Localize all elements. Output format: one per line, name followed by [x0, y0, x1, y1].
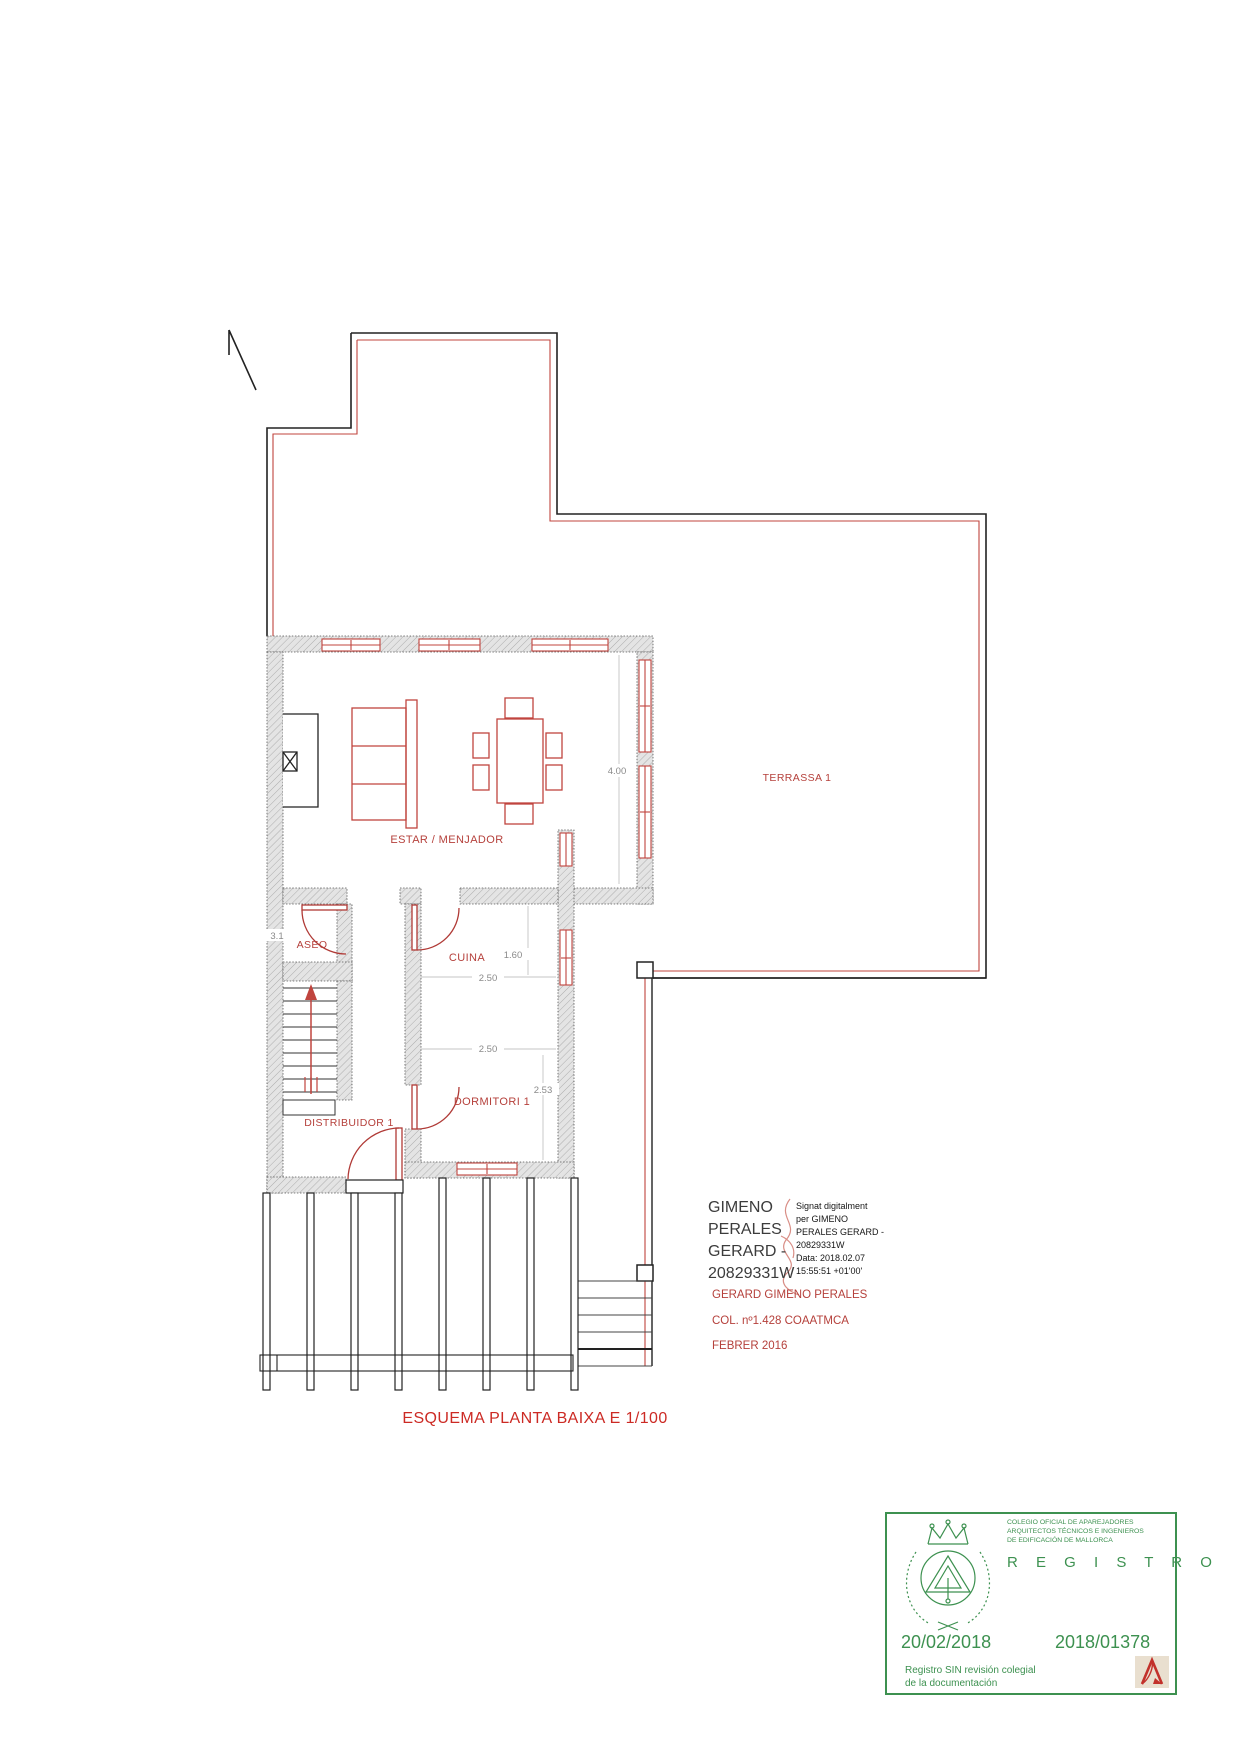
signature-detail-block: Signat digitalment per GIMENO PERALES GE…	[796, 1200, 884, 1278]
label-terrassa: TERRASSA 1	[763, 772, 832, 784]
label-cuina: CUINA	[449, 952, 485, 964]
arrow-head	[305, 984, 317, 1000]
door-dormitori	[412, 1085, 459, 1129]
plot-boundary	[267, 333, 986, 978]
signature-name-line: PERALES	[708, 1219, 794, 1241]
dining-table	[473, 698, 562, 824]
signature-name-block: GIMENO PERALES GERARD - 20829331W	[708, 1197, 794, 1285]
signature-detail-line: 15:55:51 +01'00'	[796, 1265, 884, 1278]
stamp-note-line: de la documentación	[905, 1677, 1036, 1690]
signature-detail-line: 20829331W	[796, 1239, 884, 1252]
label-aseo: ASEO	[297, 939, 328, 951]
stamp-org-line: DE EDIFICACIÓN DE MALLORCA	[1007, 1537, 1144, 1546]
coaat-red-logo-icon	[1135, 1656, 1169, 1688]
signature-name-line: 20829331W	[708, 1263, 794, 1285]
registro-stamp: COLEGIO OFICIAL DE APAREJADORES ARQUITEC…	[885, 1512, 1177, 1695]
floor-plan-drawing: 4.00 1.60 2.50 2.50 2.53 3.1 TERRASSA 1 …	[0, 0, 1241, 1755]
stamp-registro-label: R E G I S T R O	[1007, 1554, 1219, 1571]
cert-line-college: COL. nº1.428 COAATMCA	[712, 1309, 867, 1335]
stamp-org-block: COLEGIO OFICIAL DE APAREJADORES ARQUITEC…	[1007, 1519, 1144, 1545]
stamp-note-line: Registro SIN revisión colegial	[905, 1664, 1036, 1677]
signature-name-line: GIMENO	[708, 1197, 794, 1219]
stamp-note-block: Registro SIN revisión colegial de la doc…	[905, 1664, 1036, 1690]
stamp-number: 2018/01378	[1055, 1632, 1150, 1653]
drawing-title: ESQUEMA PLANTA BAIXA E 1/100	[380, 1410, 690, 1428]
stairs-exterior	[577, 1281, 652, 1370]
college-emblem-icon	[893, 1518, 1003, 1632]
dim-dorm-d: 2.53	[534, 1085, 553, 1096]
label-dormitori: DORMITORI 1	[454, 1096, 530, 1108]
dim-living: 4.00	[608, 766, 627, 777]
label-estar-menjador: ESTAR / MENJADOR	[390, 834, 503, 846]
signature-detail-line: Data: 2018.02.07	[796, 1252, 884, 1265]
north-arrow-icon	[229, 330, 256, 390]
signature-name-line: GERARD -	[708, 1241, 794, 1263]
label-distribuidor: DISTRIBUIDOR 1	[304, 1117, 394, 1129]
stamp-date: 20/02/2018	[901, 1632, 991, 1653]
signature-detail-line: Signat digitalment	[796, 1200, 884, 1213]
signature-detail-line: PERALES GERARD -	[796, 1226, 884, 1239]
signature-detail-line: per GIMENO	[796, 1213, 884, 1226]
document-page: 4.00 1.60 2.50 2.50 2.53 3.1 TERRASSA 1 …	[0, 0, 1241, 1755]
dim-cuina-d: 2.50	[479, 973, 498, 984]
counter	[283, 714, 318, 807]
cert-line-name: GERARD GIMENO PERALES	[712, 1283, 867, 1309]
dim-cuina-w: 1.60	[504, 950, 523, 961]
entrance-threshold	[346, 1180, 403, 1193]
porch-posts	[263, 1178, 578, 1390]
cert-line-date: FEBRER 2016	[712, 1334, 867, 1360]
walls	[267, 636, 653, 1193]
sofa	[352, 700, 417, 828]
dim-dorm-w: 2.50	[479, 1044, 498, 1055]
dimension-labels: 4.00 1.60 2.50 2.50 2.53 3.1	[266, 764, 632, 1096]
stamp-org-line: COLEGIO OFICIAL DE APAREJADORES	[1007, 1519, 1144, 1528]
stamp-org-line: ARQUITECTOS TÉCNICOS E INGENIEROS	[1007, 1528, 1144, 1537]
certificate-text-block: GERARD GIMENO PERALES COL. nº1.428 COAAT…	[712, 1283, 867, 1360]
door-entrance	[348, 1128, 402, 1180]
stairs-interior	[283, 984, 337, 1115]
dim-aseo-frag: 3.1	[270, 931, 283, 942]
windows	[322, 639, 651, 1175]
